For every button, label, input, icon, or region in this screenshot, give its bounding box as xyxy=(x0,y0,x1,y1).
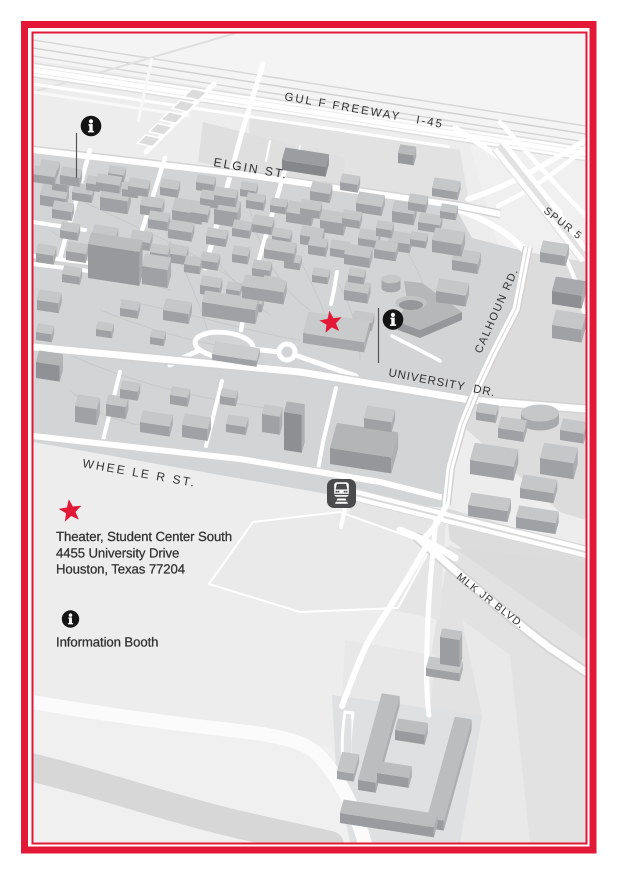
svg-text:Theater, Student Center South: Theater, Student Center South xyxy=(56,529,232,544)
svg-text:Houston, Texas 77204: Houston, Texas 77204 xyxy=(56,562,185,577)
svg-text:Information Booth: Information Booth xyxy=(56,635,158,650)
svg-text:4455 University Drive: 4455 University Drive xyxy=(56,546,179,561)
